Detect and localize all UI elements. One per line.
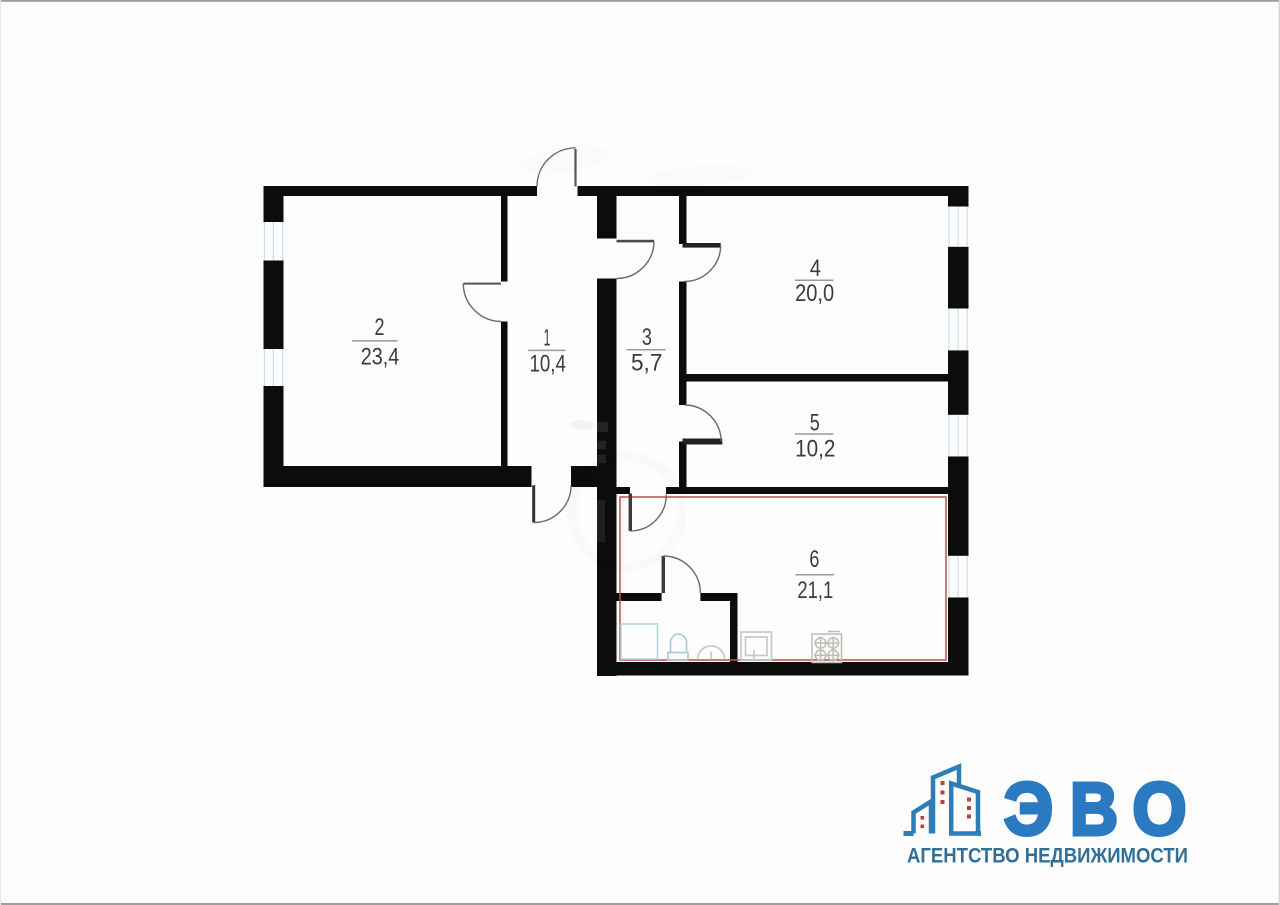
- svg-text:О: О: [1133, 768, 1187, 851]
- svg-text:4: 4: [810, 255, 821, 282]
- svg-text:2: 2: [375, 314, 385, 341]
- svg-text:5: 5: [810, 409, 820, 436]
- svg-text:5,7: 5,7: [631, 350, 662, 377]
- svg-text:21,1: 21,1: [797, 577, 833, 604]
- svg-text:3: 3: [642, 324, 652, 351]
- svg-text:20,0: 20,0: [795, 280, 834, 307]
- svg-text:6: 6: [809, 546, 819, 573]
- svg-text:23,4: 23,4: [361, 343, 400, 370]
- svg-text:10,4: 10,4: [530, 351, 566, 378]
- svg-text:АГЕНТСТВО НЕДВИЖИМОСТИ: АГЕНТСТВО НЕДВИЖИМОСТИ: [907, 845, 1188, 868]
- svg-text:1: 1: [544, 325, 551, 352]
- svg-text:В: В: [1070, 768, 1118, 851]
- svg-text:10,2: 10,2: [795, 435, 835, 462]
- svg-text:Э: Э: [1004, 768, 1053, 851]
